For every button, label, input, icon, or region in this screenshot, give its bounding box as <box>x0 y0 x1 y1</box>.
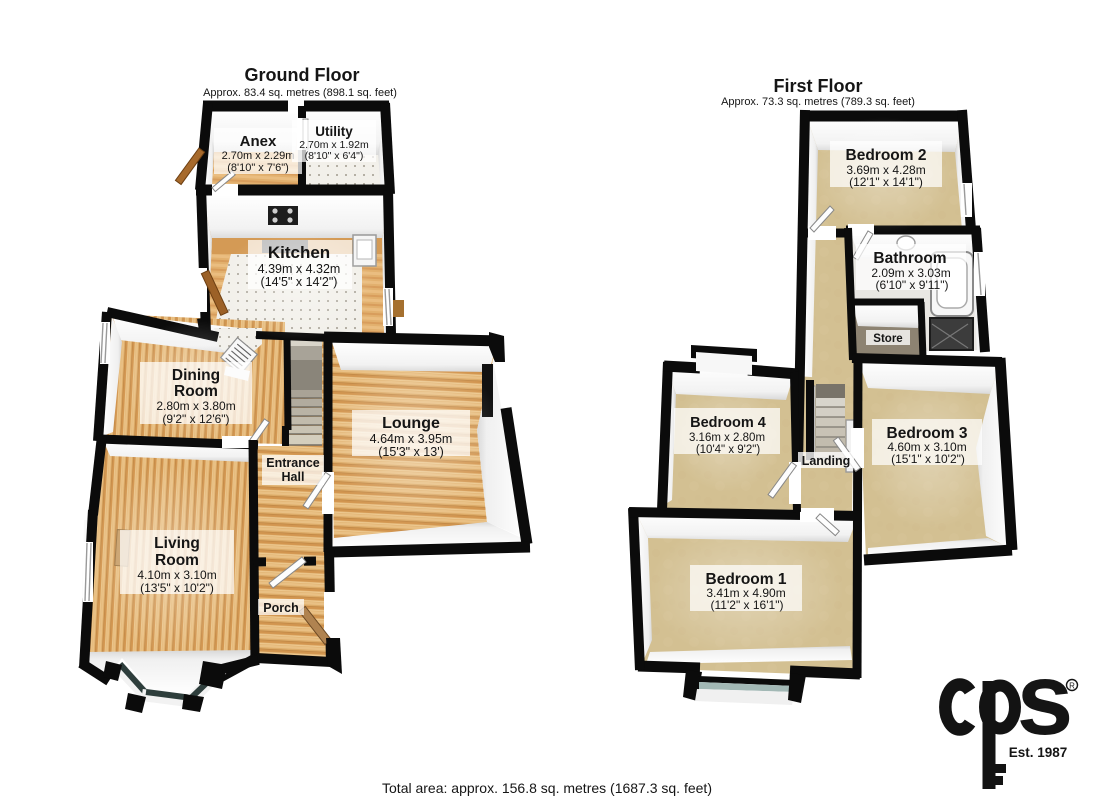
svg-text:Landing: Landing <box>802 454 851 468</box>
svg-text:(6'10" x 9'11"): (6'10" x 9'11") <box>876 278 949 292</box>
svg-text:Anex: Anex <box>240 133 277 150</box>
svg-text:(11'2" x 16'1"): (11'2" x 16'1") <box>711 598 784 612</box>
svg-text:2.70m x 2.29m: 2.70m x 2.29m <box>222 150 295 162</box>
svg-text:Dining: Dining <box>172 367 220 384</box>
svg-text:Store: Store <box>873 333 902 345</box>
svg-text:Living: Living <box>154 535 200 552</box>
svg-text:Entrance: Entrance <box>266 456 320 470</box>
svg-text:(8'10" x 7'6"): (8'10" x 7'6") <box>227 162 289 174</box>
svg-text:4.64m x 3.95m: 4.64m x 3.95m <box>370 432 453 446</box>
svg-text:3.16m x 2.80m: 3.16m x 2.80m <box>689 432 765 444</box>
svg-text:(15'1" x 10'2"): (15'1" x 10'2") <box>891 452 965 466</box>
svg-text:4.39m x 4.32m: 4.39m x 4.32m <box>258 262 341 276</box>
svg-text:(9'2" x 12'6"): (9'2" x 12'6") <box>162 412 229 426</box>
svg-text:Room: Room <box>174 383 218 400</box>
svg-text:Approx. 73.3 sq. metres (789.3: Approx. 73.3 sq. metres (789.3 sq. feet) <box>721 96 915 108</box>
svg-text:(13'5" x 10'2"): (13'5" x 10'2") <box>140 581 214 595</box>
svg-text:Room: Room <box>155 552 199 569</box>
svg-text:Bathroom: Bathroom <box>873 250 946 267</box>
svg-text:(12'1" x 14'1"): (12'1" x 14'1") <box>849 175 923 189</box>
svg-text:(10'4" x 9'2"): (10'4" x 9'2") <box>696 444 761 456</box>
svg-text:(14'5" x 14'2"): (14'5" x 14'2") <box>261 275 338 289</box>
svg-text:Bedroom 4: Bedroom 4 <box>690 415 766 431</box>
svg-text:4.10m x 3.10m: 4.10m x 3.10m <box>137 568 216 582</box>
svg-text:(15'3" x 13'): (15'3" x 13') <box>378 445 444 459</box>
svg-text:Bedroom 2: Bedroom 2 <box>846 147 927 164</box>
svg-text:2.80m x 3.80m: 2.80m x 3.80m <box>156 399 235 413</box>
svg-text:Lounge: Lounge <box>382 415 440 432</box>
svg-text:Total area: approx. 156.8 sq.: Total area: approx. 156.8 sq. metres (16… <box>382 780 712 796</box>
svg-text:Ground Floor: Ground Floor <box>245 65 360 85</box>
svg-text:(8'10" x 6'4"): (8'10" x 6'4") <box>305 150 364 162</box>
svg-text:First Floor: First Floor <box>774 76 863 96</box>
svg-text:s: s <box>1017 642 1074 756</box>
svg-text:Kitchen: Kitchen <box>268 243 330 262</box>
svg-text:Approx. 83.4 sq. metres (898.1: Approx. 83.4 sq. metres (898.1 sq. feet) <box>203 87 397 99</box>
svg-text:Est. 1987: Est. 1987 <box>1009 745 1068 760</box>
svg-text:R: R <box>1069 682 1075 691</box>
svg-text:Utility: Utility <box>315 124 353 139</box>
svg-text:Porch: Porch <box>263 601 298 615</box>
svg-text:Hall: Hall <box>282 470 305 484</box>
